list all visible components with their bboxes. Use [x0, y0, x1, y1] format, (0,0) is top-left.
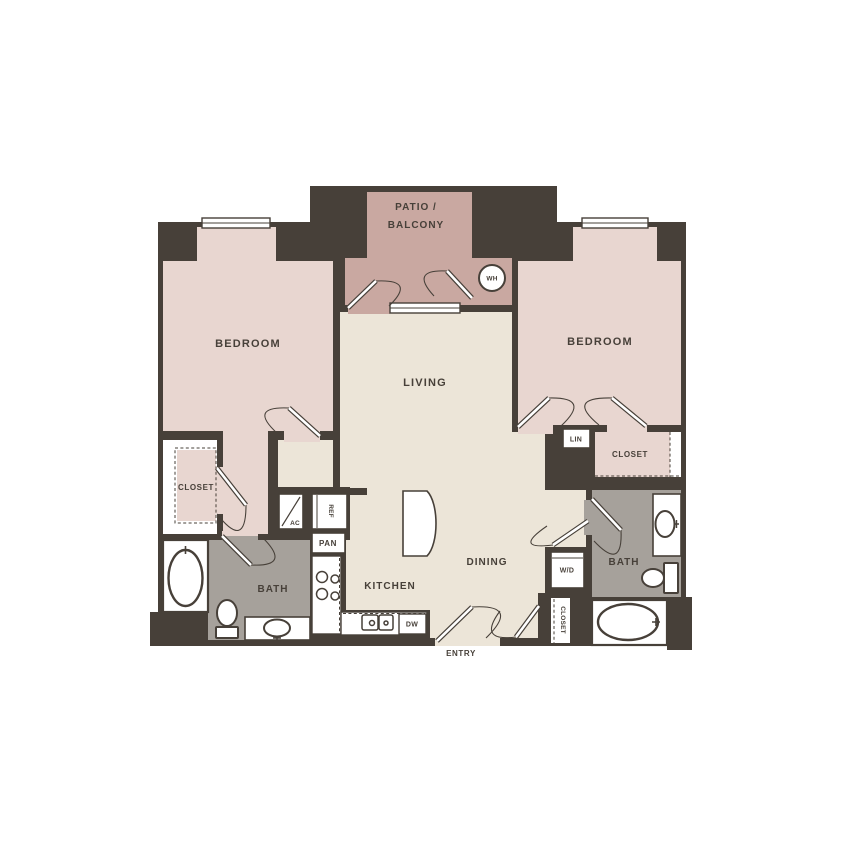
floorplan-drawing: BEDROOM BEDROOM LIVING DINING KITCHEN PA… — [0, 0, 844, 844]
label-patio-line1: PATIO / — [395, 202, 437, 213]
label-water-heater: WH — [486, 276, 497, 283]
floorplan-canvas: BEDROOM BEDROOM LIVING DINING KITCHEN PA… — [0, 0, 844, 844]
label-bath-left: BATH — [257, 584, 288, 595]
label-bedroom-right: BEDROOM — [567, 336, 633, 348]
window-bedroom-right — [582, 218, 648, 228]
window-bedroom-left — [202, 218, 270, 228]
bathtub-icon-right — [592, 600, 667, 645]
label-patio-line2: BALCONY — [388, 220, 444, 231]
label-entry: ENTRY — [446, 649, 476, 658]
corner-pier-bottom-left — [150, 612, 208, 646]
label-refrigerator: REF — [327, 504, 334, 518]
sink-icon-left — [245, 617, 310, 640]
label-bedroom-left: BEDROOM — [215, 338, 281, 350]
room-floors — [163, 192, 681, 640]
bathtub-icon-left — [163, 540, 208, 612]
label-kitchen: KITCHEN — [364, 581, 415, 592]
sink-icon-right — [653, 494, 681, 556]
label-dining: DINING — [467, 557, 508, 568]
kitchen-island — [403, 491, 436, 556]
label-closet-entry: CLOSET — [559, 606, 566, 634]
label-hvac: AC — [290, 520, 300, 527]
label-closet-left: CLOSET — [178, 483, 214, 492]
label-dishwasher: DW — [406, 622, 418, 629]
label-pantry: PAN — [319, 539, 337, 548]
label-living: LIVING — [403, 377, 447, 389]
toilet-icon-left — [216, 600, 238, 638]
window-living-patio — [390, 303, 460, 313]
label-closet-right: CLOSET — [612, 450, 648, 459]
corner-pier-bottom-right — [667, 597, 692, 650]
label-washer-dryer: W/D — [560, 568, 575, 575]
kitchen-sink-icon — [362, 615, 393, 630]
label-linen: LIN — [570, 437, 582, 444]
label-bath-right: BATH — [608, 557, 639, 568]
